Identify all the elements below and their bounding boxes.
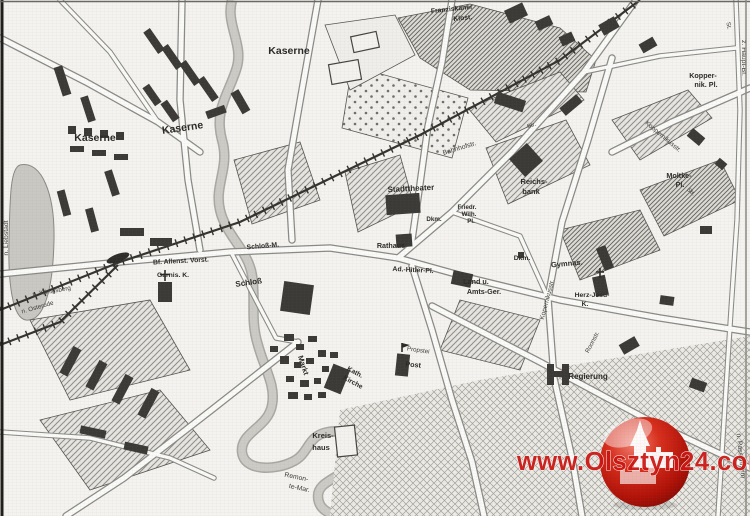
label-post: Post bbox=[405, 359, 422, 369]
label-herz-jesu-1: Herz-Jesu- bbox=[575, 292, 610, 299]
label-amts-ger: Amts-Ger. bbox=[467, 287, 501, 296]
label-moltke-2: Pl. bbox=[676, 180, 685, 189]
label-dkm-1: Dkm. bbox=[426, 216, 441, 223]
schloss-building bbox=[280, 281, 314, 315]
label-reichsbank-1: Reichs- bbox=[520, 177, 548, 186]
label-garnis-k: Garnis. K. bbox=[157, 272, 189, 279]
watermark-url: www.Olsztyn24.com bbox=[516, 448, 750, 476]
label-kaserne-3: Kaserne bbox=[268, 45, 310, 57]
label-moltke-1: Moltke- bbox=[666, 171, 692, 180]
label-herz-jesu-2: K. bbox=[582, 301, 589, 308]
label-n-liebstadt: n. Liebstadt bbox=[3, 220, 10, 255]
map-screenshot: Kaserne Kaserne Kaserne Franziskaner Klo… bbox=[0, 0, 750, 516]
label-land-u: Land u. bbox=[463, 277, 489, 286]
label-koppernik-pl-2: nik. Pl. bbox=[694, 80, 717, 89]
label-wilh: Wilh. bbox=[462, 211, 477, 218]
label-koppernik-pl-1: Kopper- bbox=[689, 71, 717, 80]
label-kaserne-1: Kaserne bbox=[74, 132, 116, 144]
label-regierung: Regierung bbox=[568, 372, 608, 381]
stadttheater-building bbox=[385, 193, 420, 215]
label-kreishaus-1: Kreis- bbox=[312, 431, 334, 440]
label-friedr: Friedr. bbox=[458, 204, 477, 211]
label-pl-1: Pl. bbox=[467, 218, 475, 225]
label-kreishaus-2: haus bbox=[312, 443, 330, 452]
label-reichsbank-2: bank bbox=[522, 187, 540, 196]
label-dkm-2: Dkm. bbox=[514, 255, 531, 262]
label-rathaus: Rathaus bbox=[377, 241, 405, 250]
kreishaus-building bbox=[334, 425, 357, 457]
city-map: Kaserne Kaserne Kaserne Franziskaner Klo… bbox=[0, 0, 750, 516]
garnisonkirche-building bbox=[158, 282, 172, 302]
